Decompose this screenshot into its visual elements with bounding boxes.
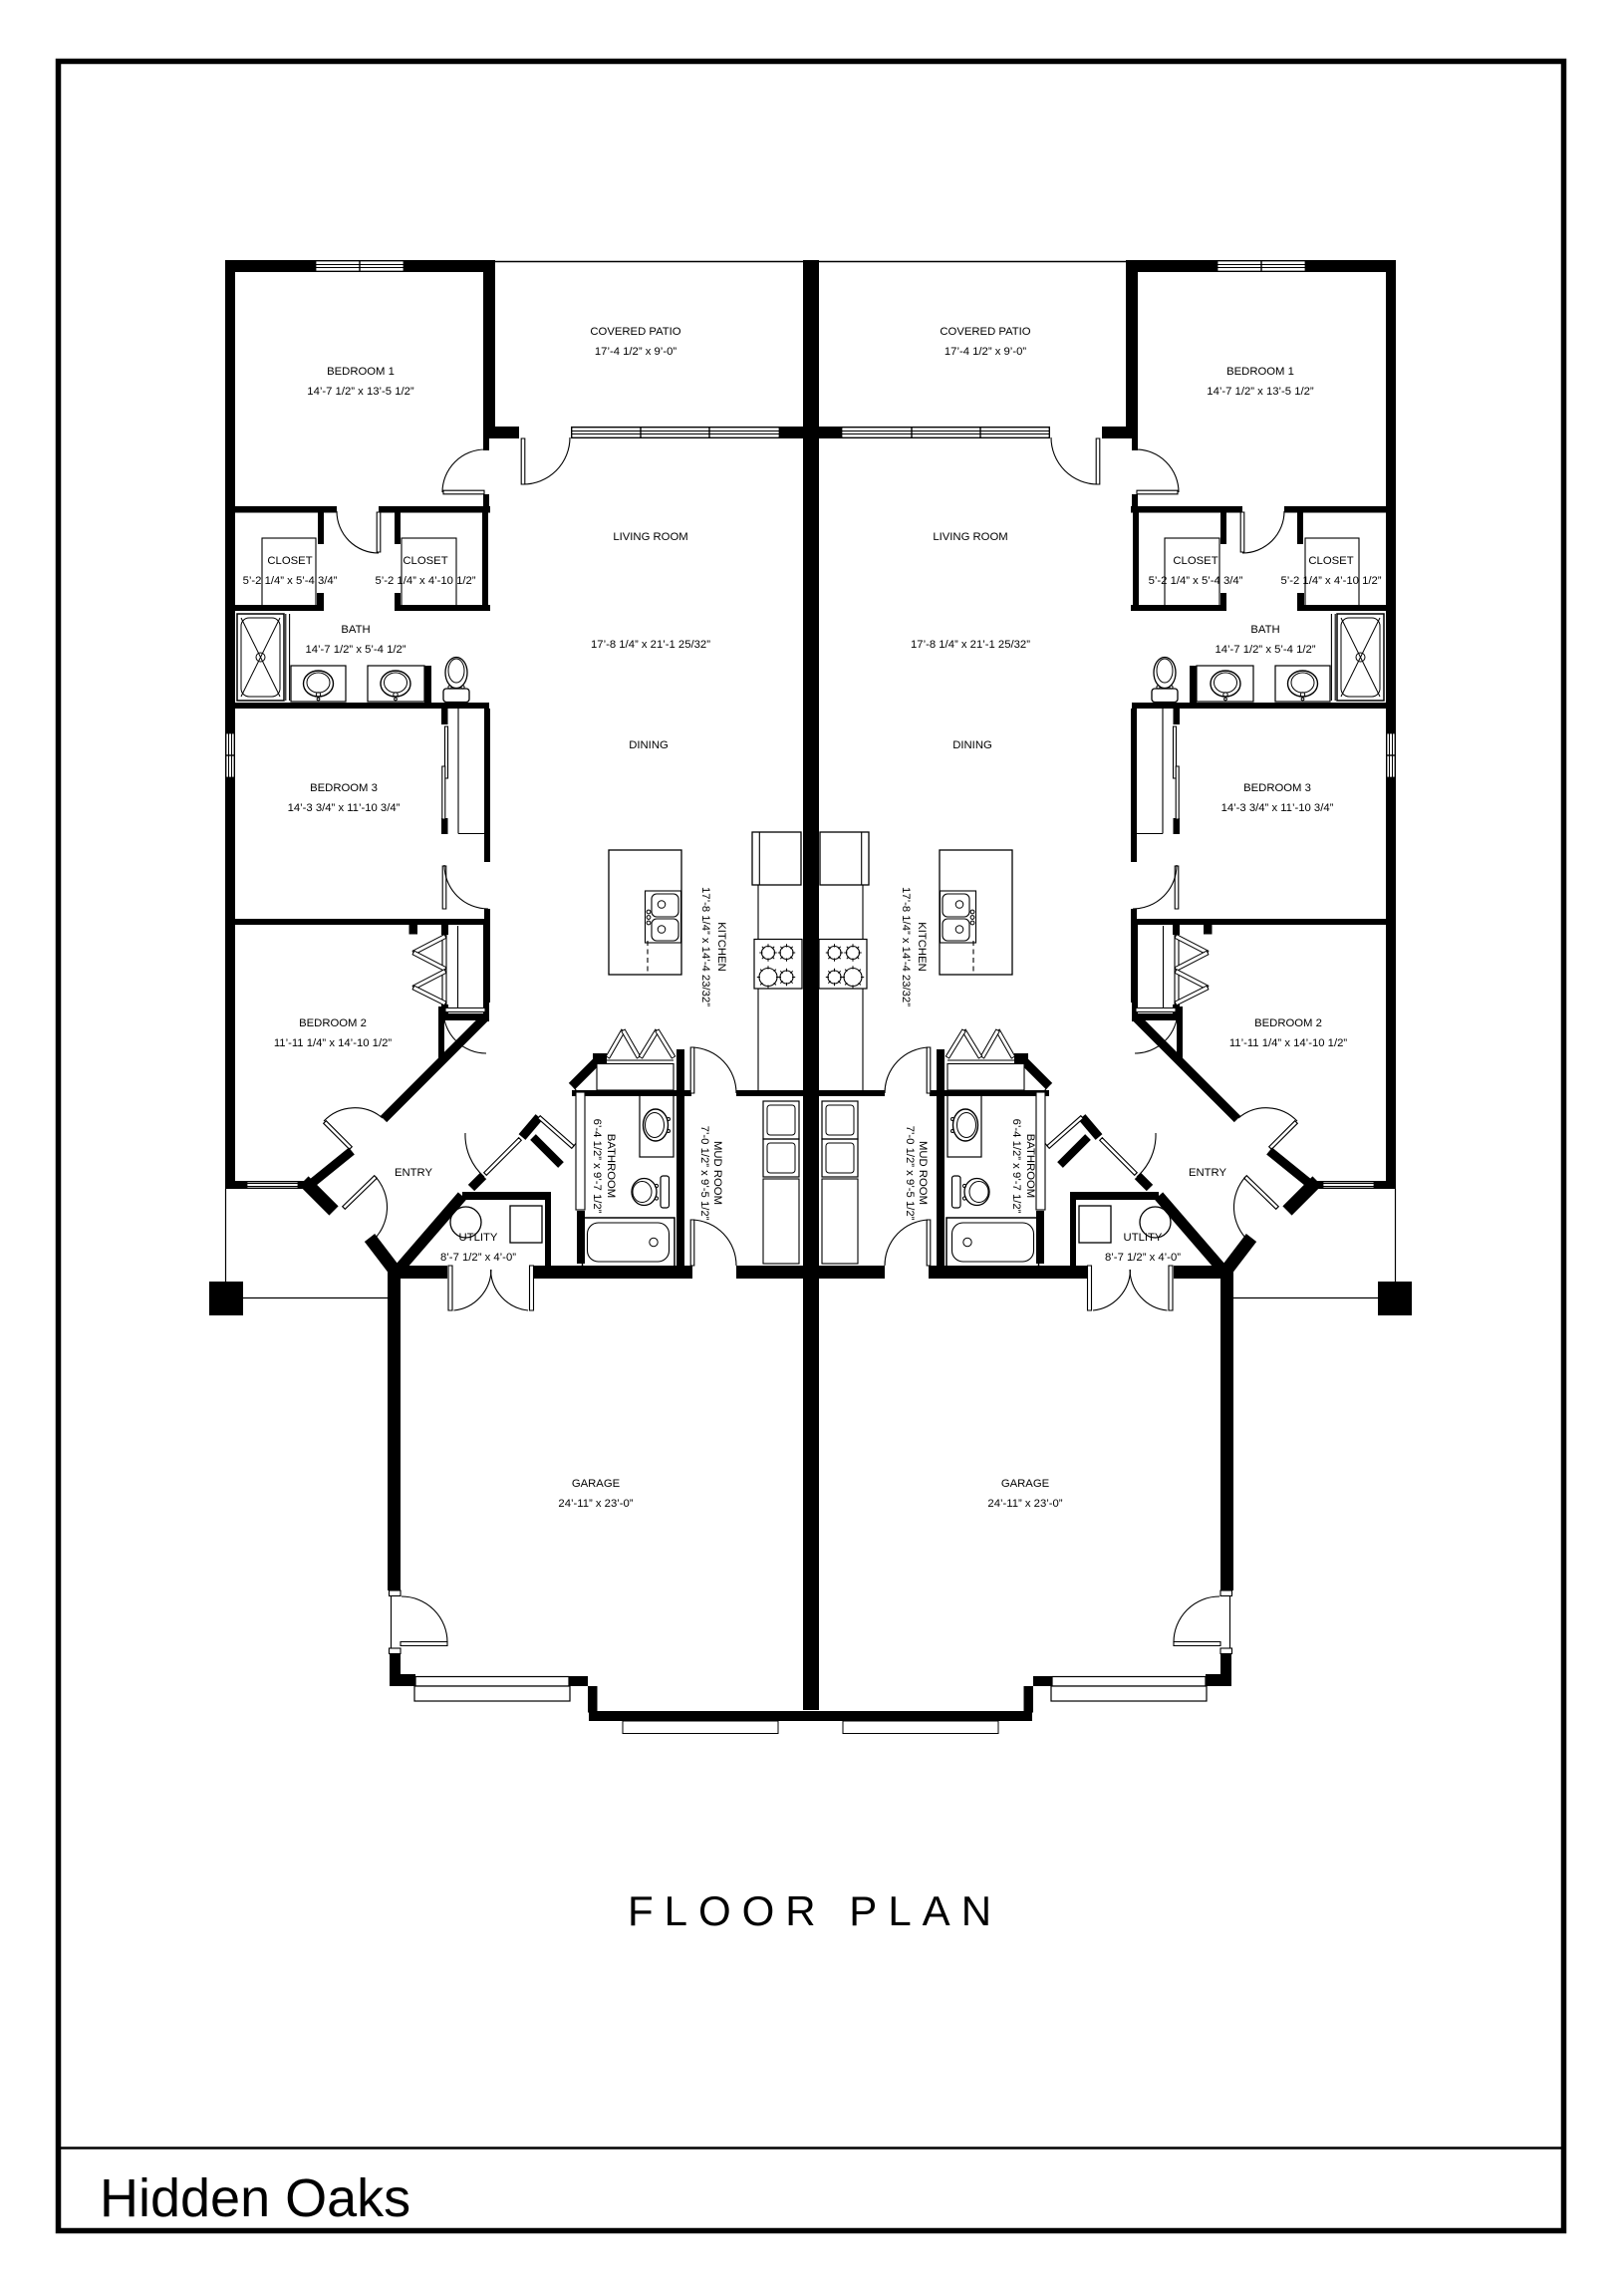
svg-text:BATH: BATH (1250, 624, 1279, 636)
svg-text:5’-2 1/4” x 4’-10 1/2”: 5’-2 1/4” x 4’-10 1/2” (375, 575, 475, 587)
svg-text:MUD ROOM: MUD ROOM (917, 1141, 929, 1205)
svg-text:11’-11 1/4” x 14’-10 1/2”: 11’-11 1/4” x 14’-10 1/2” (274, 1037, 393, 1049)
svg-text:FLOOR PLAN: FLOOR PLAN (628, 1887, 1002, 1934)
svg-text:DINING: DINING (629, 739, 669, 751)
svg-text:COVERED PATIO: COVERED PATIO (940, 326, 1030, 338)
svg-text:24’-11” x 23’-0”: 24’-11” x 23’-0” (987, 1498, 1062, 1510)
svg-text:6’-4 1/2” x 9’-7 1/2”: 6’-4 1/2” x 9’-7 1/2” (1010, 1119, 1022, 1214)
svg-text:17’-4 1/2” x 9’-0”: 17’-4 1/2” x 9’-0” (945, 346, 1026, 358)
svg-text:LIVING ROOM: LIVING ROOM (933, 531, 1007, 543)
svg-text:BEDROOM 1: BEDROOM 1 (1226, 366, 1294, 378)
svg-text:8’-7 1/2” x 4’-0”: 8’-7 1/2” x 4’-0” (1105, 1252, 1181, 1264)
svg-text:11’-11 1/4” x 14’-10 1/2”: 11’-11 1/4” x 14’-10 1/2” (1229, 1037, 1348, 1049)
svg-text:17’-8 1/4” x 14’-4 23/32”: 17’-8 1/4” x 14’-4 23/32” (699, 887, 711, 1006)
svg-text:CLOSET: CLOSET (267, 555, 312, 567)
svg-text:14’-7 1/2” x 5’-4 1/2”: 14’-7 1/2” x 5’-4 1/2” (305, 644, 405, 656)
svg-text:BEDROOM 2: BEDROOM 2 (299, 1017, 367, 1029)
svg-text:CLOSET: CLOSET (1173, 555, 1217, 567)
svg-text:MUD ROOM: MUD ROOM (711, 1141, 723, 1205)
svg-text:CLOSET: CLOSET (403, 555, 447, 567)
svg-text:24’-11” x 23’-0”: 24’-11” x 23’-0” (558, 1498, 633, 1510)
svg-text:BEDROOM 2: BEDROOM 2 (1254, 1017, 1322, 1029)
svg-text:8’-7 1/2” x 4’-0”: 8’-7 1/2” x 4’-0” (440, 1252, 516, 1264)
svg-text:BATHROOM: BATHROOM (1024, 1134, 1036, 1198)
svg-text:14’-7 1/2” x 5’-4 1/2”: 14’-7 1/2” x 5’-4 1/2” (1215, 644, 1315, 656)
svg-text:7’-0 1/2” x 9’-5 1/2”: 7’-0 1/2” x 9’-5 1/2” (904, 1126, 916, 1221)
svg-text:ENTRY: ENTRY (1189, 1167, 1227, 1179)
svg-text:14’-7 1/2” x 13’-5 1/2”: 14’-7 1/2” x 13’-5 1/2” (307, 386, 414, 398)
svg-text:LIVING ROOM: LIVING ROOM (613, 531, 687, 543)
svg-text:5’-2 1/4” x 4’-10 1/2”: 5’-2 1/4” x 4’-10 1/2” (1280, 575, 1381, 587)
svg-text:BEDROOM 1: BEDROOM 1 (327, 366, 395, 378)
svg-text:Hidden Oaks: Hidden Oaks (100, 2168, 410, 2228)
svg-text:6’-4 1/2” x 9’-7 1/2”: 6’-4 1/2” x 9’-7 1/2” (591, 1119, 603, 1214)
svg-text:5’-2 1/4” x 5’-4 3/4”: 5’-2 1/4” x 5’-4 3/4” (1149, 575, 1243, 587)
svg-text:14’-7 1/2” x 13’-5 1/2”: 14’-7 1/2” x 13’-5 1/2” (1207, 386, 1314, 398)
svg-text:17’-8 1/4” x 21’-1 25/32”: 17’-8 1/4” x 21’-1 25/32” (591, 639, 710, 651)
svg-text:KITCHEN: KITCHEN (916, 922, 928, 972)
svg-text:17’-4 1/2” x 9’-0”: 17’-4 1/2” x 9’-0” (595, 346, 676, 358)
svg-text:KITCHEN: KITCHEN (715, 922, 727, 972)
svg-text:UTLITY: UTLITY (459, 1232, 498, 1244)
svg-text:BEDROOM 3: BEDROOM 3 (1243, 782, 1311, 794)
svg-text:GARAGE: GARAGE (572, 1478, 621, 1490)
svg-text:UTLITY: UTLITY (1124, 1232, 1163, 1244)
svg-text:7’-0 1/2” x 9’-5 1/2”: 7’-0 1/2” x 9’-5 1/2” (698, 1126, 710, 1221)
svg-text:BATHROOM: BATHROOM (605, 1134, 617, 1198)
svg-text:ENTRY: ENTRY (395, 1167, 433, 1179)
svg-text:14’-3 3/4” x 11’-10 3/4”: 14’-3 3/4” x 11’-10 3/4” (288, 802, 401, 814)
svg-text:5’-2 1/4” x 5’-4 3/4”: 5’-2 1/4” x 5’-4 3/4” (243, 575, 338, 587)
svg-text:BEDROOM 3: BEDROOM 3 (310, 782, 378, 794)
svg-text:GARAGE: GARAGE (1001, 1478, 1050, 1490)
svg-text:BATH: BATH (341, 624, 370, 636)
svg-text:DINING: DINING (952, 739, 992, 751)
svg-text:CLOSET: CLOSET (1308, 555, 1353, 567)
svg-text:COVERED PATIO: COVERED PATIO (590, 326, 680, 338)
svg-text:17’-8 1/4” x 21’-1 25/32”: 17’-8 1/4” x 21’-1 25/32” (911, 639, 1030, 651)
svg-text:14’-3 3/4” x 11’-10 3/4”: 14’-3 3/4” x 11’-10 3/4” (1221, 802, 1334, 814)
svg-text:17’-8 1/4” x 14’-4 23/32”: 17’-8 1/4” x 14’-4 23/32” (900, 887, 912, 1006)
